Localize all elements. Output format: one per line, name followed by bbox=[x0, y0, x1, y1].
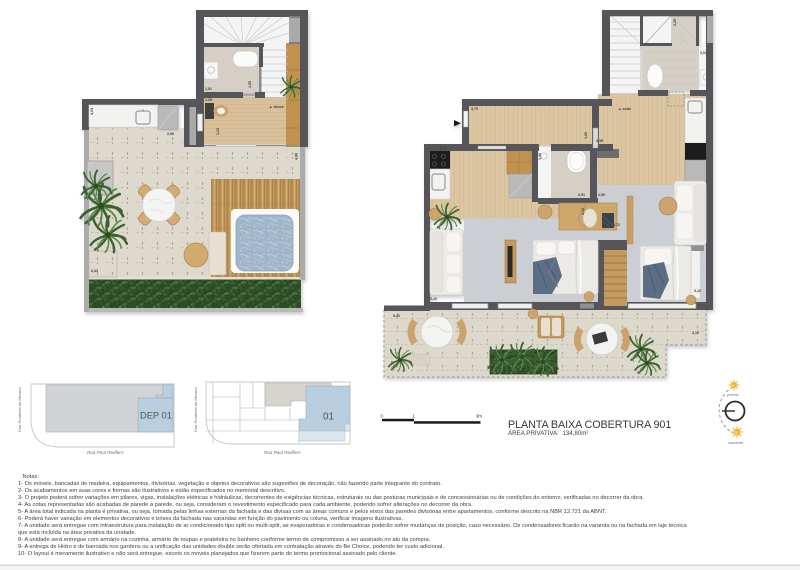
svg-text:3,75: 3,75 bbox=[471, 107, 478, 111]
svg-text:Rua Paul Redfern: Rua Paul Redfern bbox=[264, 450, 301, 455]
svg-text:2,50: 2,50 bbox=[598, 193, 605, 197]
svg-text:5,20: 5,20 bbox=[430, 297, 437, 301]
svg-text:nascente: nascente bbox=[728, 441, 743, 445]
svg-text:2,51: 2,51 bbox=[578, 193, 585, 197]
svg-text:9- A entrega de Hidro e de ban: 9- A entrega de Hidro e de bancada nos g… bbox=[18, 544, 444, 550]
svg-text:1,77: 1,77 bbox=[391, 361, 395, 368]
svg-text:5- A área total indicada na pl: 5- A área total indicada na planta é pri… bbox=[18, 509, 607, 515]
svg-text:1: 1 bbox=[413, 414, 416, 419]
svg-text:3,72: 3,72 bbox=[613, 223, 620, 227]
svg-text:3,35: 3,35 bbox=[596, 139, 603, 143]
svg-text:Rua Prudente de Moraes: Rua Prudente de Moraes bbox=[17, 387, 22, 432]
svg-text:2,01: 2,01 bbox=[700, 51, 707, 55]
svg-text:8- A unidade será entregue com: 8- A unidade será entregue com armário n… bbox=[18, 537, 431, 543]
svg-text:2,25: 2,25 bbox=[673, 19, 677, 26]
svg-text:ÁREA PRIVATIVA: 134,80m²: ÁREA PRIVATIVA: 134,80m² bbox=[508, 430, 588, 437]
svg-text:3,12: 3,12 bbox=[581, 208, 585, 215]
svg-text:2,05: 2,05 bbox=[205, 98, 212, 102]
svg-text:Rua Paul Redfern: Rua Paul Redfern bbox=[87, 450, 124, 455]
svg-text:1,20: 1,20 bbox=[584, 132, 588, 139]
svg-text:4,10: 4,10 bbox=[692, 331, 699, 335]
svg-text:6,43: 6,43 bbox=[91, 269, 98, 273]
svg-text:▲ sobe: ▲ sobe bbox=[618, 107, 631, 111]
svg-text:1,51: 1,51 bbox=[205, 87, 212, 91]
svg-text:3,11: 3,11 bbox=[440, 146, 447, 150]
svg-text:7- A unidade será entregue com: 7- A unidade será entregue com infraestr… bbox=[18, 523, 688, 529]
svg-text:3,10: 3,10 bbox=[694, 289, 701, 293]
svg-text:▲ desce: ▲ desce bbox=[269, 105, 284, 109]
svg-text:4,88: 4,88 bbox=[295, 153, 299, 160]
svg-text:DEP 01: DEP 01 bbox=[140, 411, 172, 421]
svg-text:1- Os móveis, bancadas de made: 1- Os móveis, bancadas de madeira, equip… bbox=[18, 481, 442, 487]
svg-text:3- O projeto poderá sofrer var: 3- O projeto poderá sofrer variações em … bbox=[18, 495, 644, 501]
svg-text:1,55: 1,55 bbox=[248, 81, 252, 88]
svg-text:Rua Prudente de Moraes: Rua Prudente de Moraes bbox=[193, 387, 198, 432]
svg-text:Notas:: Notas: bbox=[23, 474, 40, 480]
svg-text:3m: 3m bbox=[476, 414, 482, 419]
svg-text:0: 0 bbox=[381, 414, 384, 419]
svg-text:01: 01 bbox=[323, 412, 334, 423]
svg-text:que está incluída na área priv: que está incluída na área privativa da u… bbox=[18, 530, 136, 536]
svg-text:10- O layout é meramente ilust: 10- O layout é meramente ilustrativo e n… bbox=[18, 551, 397, 557]
svg-text:2- Os acabamentos em suas core: 2- Os acabamentos em suas cores e formas… bbox=[18, 488, 286, 494]
svg-text:4,04: 4,04 bbox=[90, 108, 94, 115]
svg-text:6- Poderá haver variação em el: 6- Poderá haver variação em elementos de… bbox=[18, 516, 403, 522]
svg-text:poente: poente bbox=[727, 393, 739, 397]
svg-text:2,90: 2,90 bbox=[167, 132, 174, 136]
svg-text:5,42: 5,42 bbox=[393, 314, 400, 318]
svg-text:1,33: 1,33 bbox=[216, 128, 220, 135]
svg-text:1,46: 1,46 bbox=[538, 153, 542, 160]
svg-text:4- As cotas representadas são: 4- As cotas representadas são acabadas d… bbox=[18, 502, 473, 508]
